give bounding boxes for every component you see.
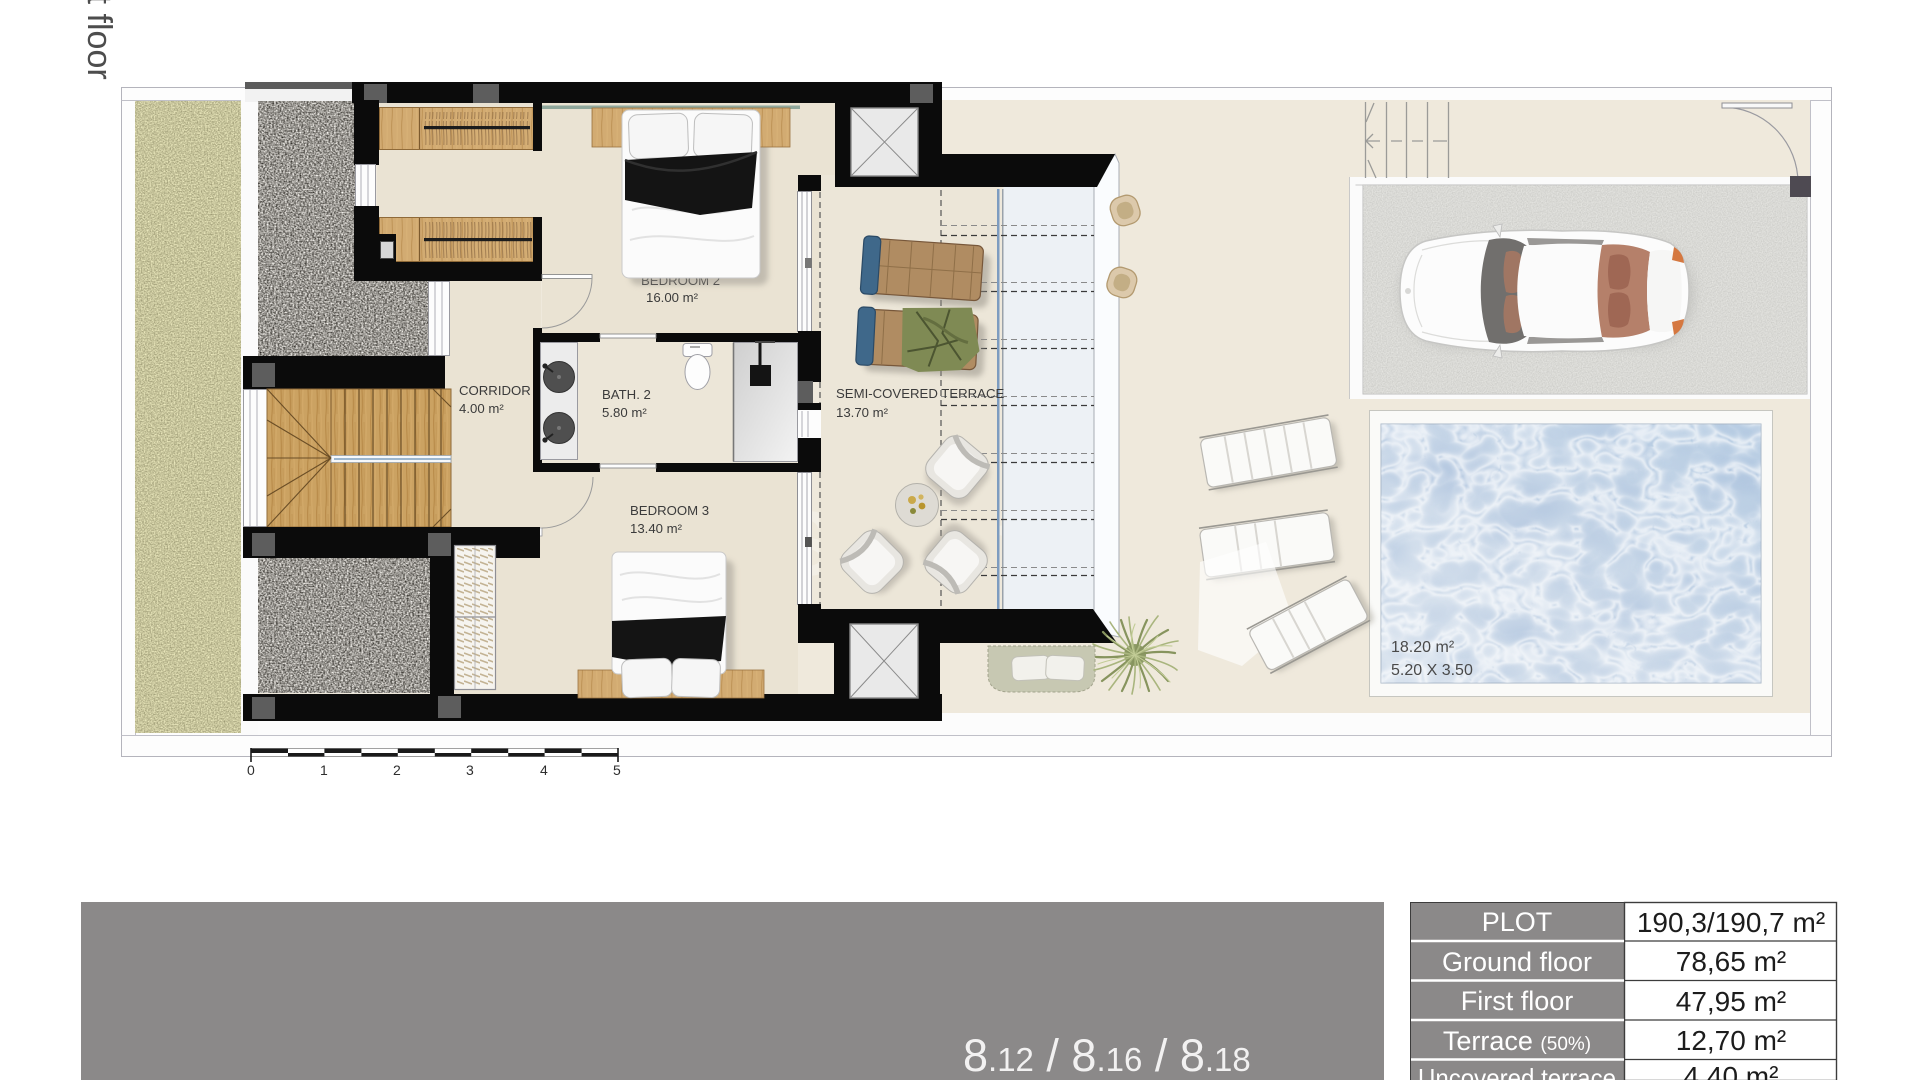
- svg-text:4.00 m²: 4.00 m²: [459, 401, 504, 416]
- svg-text:0: 0: [247, 762, 255, 778]
- svg-text:18.20 m²: 18.20 m²: [1391, 639, 1455, 656]
- svg-text:First floor: First floor: [1461, 986, 1574, 1016]
- svg-text:13.70 m²: 13.70 m²: [836, 405, 889, 420]
- svg-text:CORRIDOR: CORRIDOR: [459, 383, 531, 398]
- svg-text:1: 1: [320, 762, 328, 778]
- svg-text:5.20 X 3.50: 5.20 X 3.50: [1391, 662, 1473, 679]
- svg-text:4: 4: [540, 762, 548, 778]
- svg-text:190,3/190,7 m²: 190,3/190,7 m²: [1637, 907, 1825, 938]
- svg-text:4,40 m²: 4,40 m²: [1684, 1061, 1779, 1080]
- svg-text:Ground floor: Ground floor: [1442, 947, 1592, 977]
- svg-text:5.80 m²: 5.80 m²: [602, 405, 647, 420]
- svg-text:First floor: First floor: [80, 0, 118, 80]
- svg-text:BATH. 2: BATH. 2: [602, 387, 651, 402]
- svg-text:2: 2: [393, 762, 401, 778]
- svg-text:SEMI-COVERED TERRACE: SEMI-COVERED TERRACE: [836, 386, 1004, 401]
- svg-text:12,70 m²: 12,70 m²: [1676, 1025, 1787, 1056]
- svg-text:78,65 m²: 78,65 m²: [1676, 946, 1787, 977]
- svg-text:BEDROOM 3: BEDROOM 3: [630, 503, 709, 518]
- svg-text:Uncovered terrace: Uncovered terrace: [1418, 1063, 1616, 1080]
- svg-text:47,95 m²: 47,95 m²: [1676, 986, 1787, 1017]
- svg-text:13.40 m²: 13.40 m²: [630, 521, 683, 536]
- svg-text:PLOT: PLOT: [1482, 907, 1553, 937]
- svg-text:5: 5: [613, 762, 621, 778]
- svg-text:16.00 m²: 16.00 m²: [646, 290, 699, 305]
- svg-text:3: 3: [466, 762, 474, 778]
